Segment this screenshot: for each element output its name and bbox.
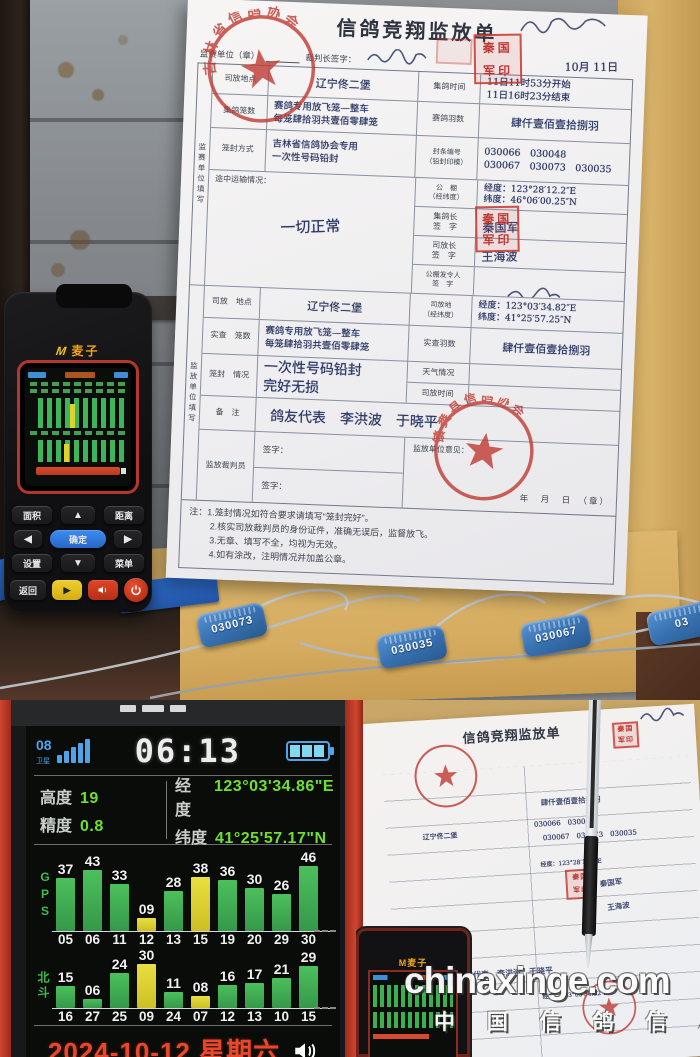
watermark-chinese: 中 国 信 鸽 信 息 网 — [434, 1006, 700, 1036]
gps-screen: 08 卫星 06:13 高度19 精度0.8 经度123°03'34.86"E — [26, 726, 340, 1057]
battery-icon — [286, 741, 330, 761]
date-bar: 2024-10-12 星期六 — [32, 1027, 334, 1057]
verified-cages-label: 实查 笼数 — [202, 318, 259, 356]
satellite-id: 25 — [106, 1009, 133, 1024]
release-geo-label: 司放地 （经纬度） — [410, 294, 473, 328]
opinion-date-line: 年 月 日 （章） — [520, 492, 611, 507]
satellite-id: 05 — [52, 932, 79, 947]
satellite-id: 15 — [187, 932, 214, 947]
bezel-mark — [120, 705, 136, 712]
satellite-id: 16 — [52, 1009, 79, 1024]
screen-statusbar — [28, 371, 128, 379]
name-seal-stamp: 秦国 军印 — [475, 206, 520, 253]
satellite-id: 24 — [160, 1009, 187, 1024]
collect-time-label: 集鸽时间 — [418, 72, 481, 104]
gps-satellite-chart: GPS 37433309283836302646 050611121315192… — [32, 846, 334, 947]
satellite-id: 13 — [160, 932, 187, 947]
device-top-bezel — [11, 700, 345, 726]
satellite-id: 29 — [268, 932, 295, 947]
satellite-bar: 06 — [79, 982, 106, 1008]
seal-method-value: 吉林省信鸽协会专用 一次性号码铅封 — [265, 130, 417, 178]
gps-device: M麦子 ▲ 面积 距离 ◀ 确定 ▶ 设置 ▼ 菜单 返回 — [4, 292, 152, 612]
beidou-satellite-ids: 16272509240712131015 — [52, 1009, 332, 1024]
satellite-bar: 36 — [214, 863, 241, 931]
photo-collage: 030073 030035 030067 03 吉林省信鸽协会 信鸽竞翔监放单 — [0, 0, 700, 1057]
satellite-bar: 29 — [295, 949, 322, 1008]
form-photo-small: 信鸽竞翔监放单 秦国 军印 辽宁佟二堡 肆仟壹佰壹拾捌羽 030066 0300… — [356, 700, 700, 1057]
bird-count-value: 肆仟壹佰壹拾捌羽 — [479, 104, 631, 144]
satellite-id: 12 — [133, 932, 160, 947]
satellite-id: 11 — [106, 932, 133, 947]
handwritten-date: 10月 11日 — [564, 59, 632, 75]
play-button: ▶ — [52, 580, 82, 600]
settings-button: 设置 — [12, 554, 52, 572]
referee-label: 监放裁判员 — [197, 430, 256, 502]
seal-condition-value: 一次性号码铅封 完好无损 — [257, 356, 409, 404]
screen-text-line — [30, 431, 126, 435]
screen-text-line — [30, 382, 126, 386]
satellite-id: 30 — [295, 932, 322, 947]
up-button: ▲ — [61, 506, 95, 524]
mini-scribble — [637, 706, 688, 725]
verified-cages-value: 赛鸽专用放飞笼—整车 每笼肆拾羽共壹佰零肆笼 — [258, 320, 409, 362]
back-button: 返回 — [10, 580, 46, 600]
satellite-bar: 24 — [106, 956, 133, 1008]
seal-number: 030035 — [390, 637, 434, 658]
satellite-id: 20 — [241, 932, 268, 947]
beidou-satellite-chart: 北斗 15062430110816172129 1627250924071213… — [32, 947, 334, 1024]
satellite-id: 15 — [295, 1009, 322, 1024]
seal-numbers-value: 030066 030048 030067 030073 030035 — [477, 138, 630, 186]
right-button: ▶ — [114, 530, 142, 548]
longitude-label: 经度 — [175, 772, 206, 820]
name-seal-stamp: 秦国 军印 — [474, 34, 523, 85]
bird-count-label: 赛鸽羽数 — [417, 102, 480, 138]
satellite-bar: 30 — [133, 947, 160, 1008]
speaker-icon — [97, 584, 109, 596]
altitude-label: 高度 — [40, 784, 72, 808]
mini-name-seal: 秦国 军印 — [612, 721, 640, 749]
position-info: 高度19 精度0.8 经度123°03'34.86"E 纬度41°25'57.1… — [32, 777, 334, 843]
satellite-bar: 21 — [268, 961, 295, 1008]
provincial-association-round-seal: 吉林省信鸽协会 — [194, 1, 329, 136]
verified-birds-label: 实查羽数 — [408, 326, 471, 364]
satellite-bar: 43 — [79, 853, 106, 931]
handwritten-name-scribble — [517, 11, 610, 45]
mini-screen-date — [373, 1034, 429, 1039]
clock-time: 06:13 — [90, 732, 286, 770]
satellite-bar: 37 — [52, 861, 79, 931]
satellite-bar: 08 — [187, 979, 214, 1008]
photo-top-scene: 030073 030035 030067 03 吉林省信鸽协会 信鸽竞翔监放单 — [0, 0, 700, 700]
power-icon — [130, 584, 142, 596]
area-button: 面积 — [12, 506, 52, 524]
beidou-axis-label: 北斗 — [34, 949, 52, 1024]
transport-label: 途中运输情况： — [215, 174, 271, 187]
release-form-sheet: 吉林省信鸽协会 信鸽竞翔监放单 秦国 军印 监赛单位（章） 裁判长签字： 10月… — [166, 0, 648, 595]
screen-gps-bars — [38, 398, 126, 428]
satellite-bar: 28 — [160, 874, 187, 931]
satellite-bar: 11 — [160, 975, 187, 1008]
county-association-round-seal: 镇赉县信鸽协会 — [422, 388, 547, 513]
distance-button: 距离 — [104, 506, 144, 524]
release-site2-label: 司放 地点 — [204, 286, 261, 320]
satellite-bar: 16 — [214, 968, 241, 1008]
satellite-id: 09 — [133, 1009, 160, 1024]
satellite-id: 10 — [268, 1009, 295, 1024]
beidou-bars: 15062430110816172129 — [52, 949, 332, 1009]
device-screen — [25, 368, 131, 486]
latitude-label: 纬度 — [175, 824, 207, 848]
seal-numbers-label: 封条编号 （铅封印模） — [415, 136, 479, 180]
satellite-bar: 38 — [187, 860, 214, 931]
satellite-id: 07 — [187, 1009, 214, 1024]
down-button: ▼ — [61, 554, 95, 572]
satellite-id: 27 — [79, 1009, 106, 1024]
satellite-id: 12 — [214, 1009, 241, 1024]
divider — [34, 1025, 332, 1026]
table-row: 途中运输情况： 一切正常 公 棚 （经纬度） 经度：123°28′12.2″E … — [205, 170, 628, 302]
accuracy-value: 0.8 — [80, 818, 104, 836]
device-screen-bezel — [17, 360, 139, 494]
longitude-value: 123°03'34.86"E — [214, 778, 334, 796]
satellite-bar: 30 — [241, 871, 268, 931]
remark-label: 备 注 — [199, 396, 256, 432]
pen-grip — [582, 836, 599, 936]
ok-button: 确定 — [50, 530, 106, 548]
watermark-site: chinaxinge.com — [404, 960, 670, 1002]
satellite-count-label: 卫星 — [36, 756, 52, 766]
satellite-bar: 26 — [268, 877, 295, 931]
seal-number: 03 — [674, 615, 691, 630]
latitude-value: 41°25'57.17"N — [215, 830, 326, 848]
transport-cell: 途中运输情况： 一切正常 — [205, 170, 416, 294]
gps-screen-closeup: 08 卫星 06:13 高度19 精度0.8 经度123°03'34.86"E — [0, 700, 356, 1057]
altitude-value: 19 — [80, 790, 99, 808]
weather-value — [470, 374, 621, 380]
satellite-bar: 46 — [295, 849, 322, 931]
brand-logo: M麦子 — [4, 342, 152, 359]
satellite-bar: 15 — [52, 969, 79, 1008]
satellite-bar: 17 — [241, 966, 268, 1008]
satellite-id: 19 — [214, 932, 241, 947]
menu-button: 菜单 — [104, 554, 144, 572]
speaker-button — [88, 580, 118, 600]
mini-hw: 辽宁佟二堡 — [422, 830, 458, 842]
device-red-edge — [0, 700, 11, 1057]
signal-bars-icon — [57, 739, 90, 763]
satellite-id: 13 — [241, 1009, 268, 1024]
device-camera-bump — [56, 284, 132, 308]
speaker-icon — [292, 1038, 318, 1057]
seal-number: 030073 — [210, 614, 254, 636]
satellite-id: 06 — [79, 932, 106, 947]
verified-birds-value: 肆仟壹佰壹拾捌羽 — [470, 328, 622, 370]
screen-text-line — [30, 389, 126, 393]
seal-condition-label: 笼封 情况 — [201, 354, 259, 398]
table-shadow — [0, 598, 180, 700]
seal-number: 030067 — [534, 625, 578, 646]
bezel-mark — [142, 705, 164, 712]
left-button: ◀ — [14, 530, 42, 548]
brand-m-icon: M — [56, 344, 70, 358]
referee-sign2: 签字： — [253, 467, 403, 507]
bezel-mark — [170, 705, 186, 712]
referee-sign1: 签字： — [254, 432, 404, 473]
judge-signature-scribble — [364, 48, 429, 68]
transport-value: 一切正常 — [280, 215, 341, 238]
satellite-bar: 09 — [133, 901, 160, 931]
gps-satellite-ids: 05061112131519202930 — [52, 932, 332, 947]
date-text: 2024-10-12 星期六 — [48, 1032, 280, 1057]
power-button — [124, 578, 148, 602]
satellite-count: 08 卫星 — [36, 737, 52, 766]
screen-beidou-bars — [38, 440, 126, 462]
screen-date-bar — [36, 467, 120, 475]
device-red-edge — [345, 700, 356, 1057]
satellite-bar: 33 — [106, 867, 133, 931]
accuracy-label: 精度 — [40, 812, 72, 836]
gps-bars: 37433309283836302646 — [52, 848, 332, 932]
gps-axis-label: GPS — [34, 848, 52, 947]
faint-stamp — [436, 38, 473, 65]
